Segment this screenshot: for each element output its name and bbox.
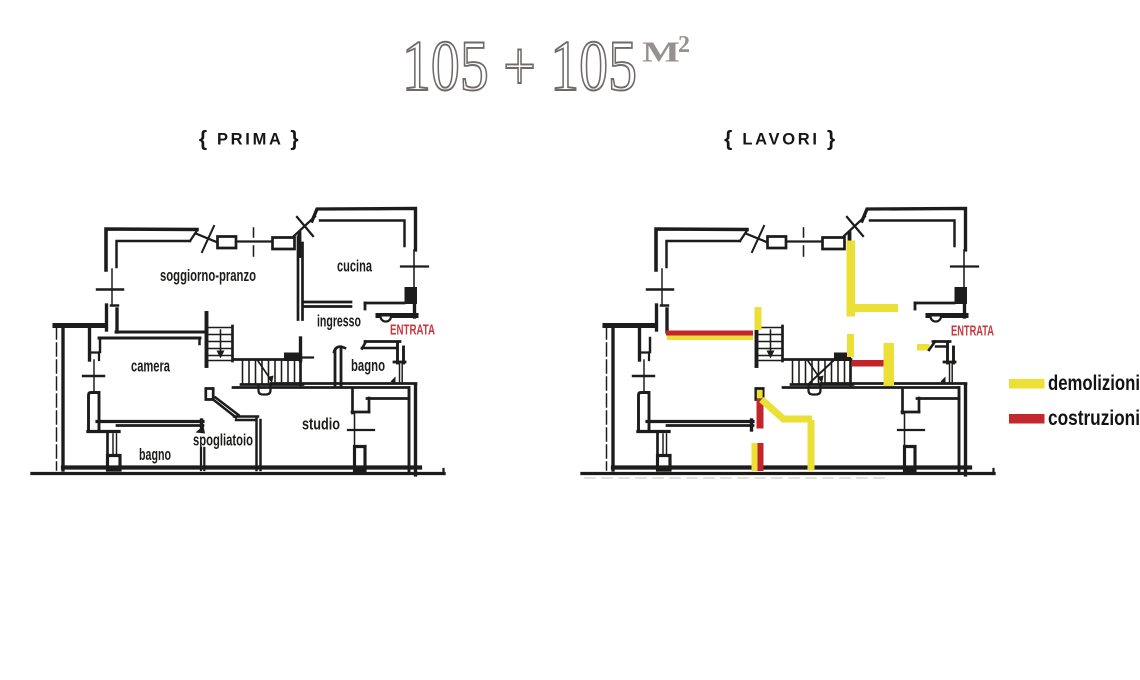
svg-text:costruzioni: costruzioni (1048, 407, 1140, 430)
svg-text:ENTRATA: ENTRATA (951, 323, 994, 340)
svg-text:{ LAVORI }: { LAVORI } (724, 128, 838, 151)
svg-text:ENTRATA: ENTRATA (390, 322, 435, 339)
svg-text:camera: camera (131, 357, 170, 376)
svg-text:demolizioni: demolizioni (1048, 372, 1140, 395)
svg-text:M2: M2 (642, 32, 690, 69)
svg-text:bagno: bagno (351, 356, 385, 375)
svg-text:bagno: bagno (139, 445, 171, 464)
svg-text:{ PRIMA }: { PRIMA } (199, 128, 301, 151)
svg-text:ingresso: ingresso (317, 312, 361, 331)
svg-text:105 + 105: 105 + 105 (402, 26, 637, 106)
svg-text:cucina: cucina (337, 257, 372, 276)
svg-text:studio: studio (302, 415, 340, 434)
svg-text:soggiorno-pranzo: soggiorno-pranzo (160, 266, 256, 285)
svg-text:spogliatoio: spogliatoio (193, 431, 253, 450)
